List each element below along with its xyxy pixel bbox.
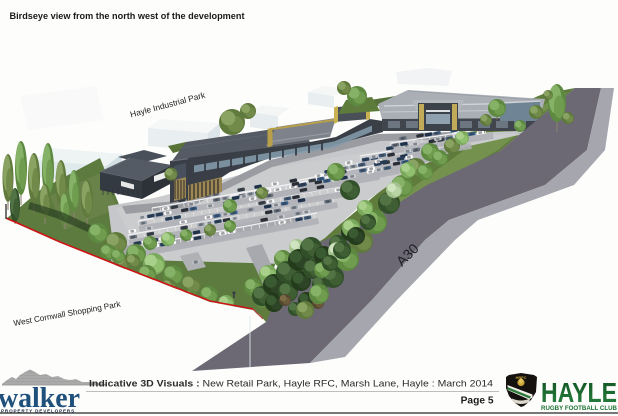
svg-text:PROPERTY DEVELOPERS: PROPERTY DEVELOPERS (1, 409, 75, 414)
svg-text:Birdseye view from the north w: Birdseye view from the north west of the… (10, 10, 245, 21)
svg-text:Indicative 3D Visuals : New Re: Indicative 3D Visuals : New Retail Park,… (89, 379, 493, 389)
svg-text:RUGBY FOOTBALL CLUB: RUGBY FOOTBALL CLUB (541, 405, 617, 412)
svg-text:Page 5: Page 5 (461, 396, 494, 407)
svg-text:HAYLE: HAYLE (541, 377, 617, 408)
svg-text:HRFC: HRFC (515, 375, 526, 380)
